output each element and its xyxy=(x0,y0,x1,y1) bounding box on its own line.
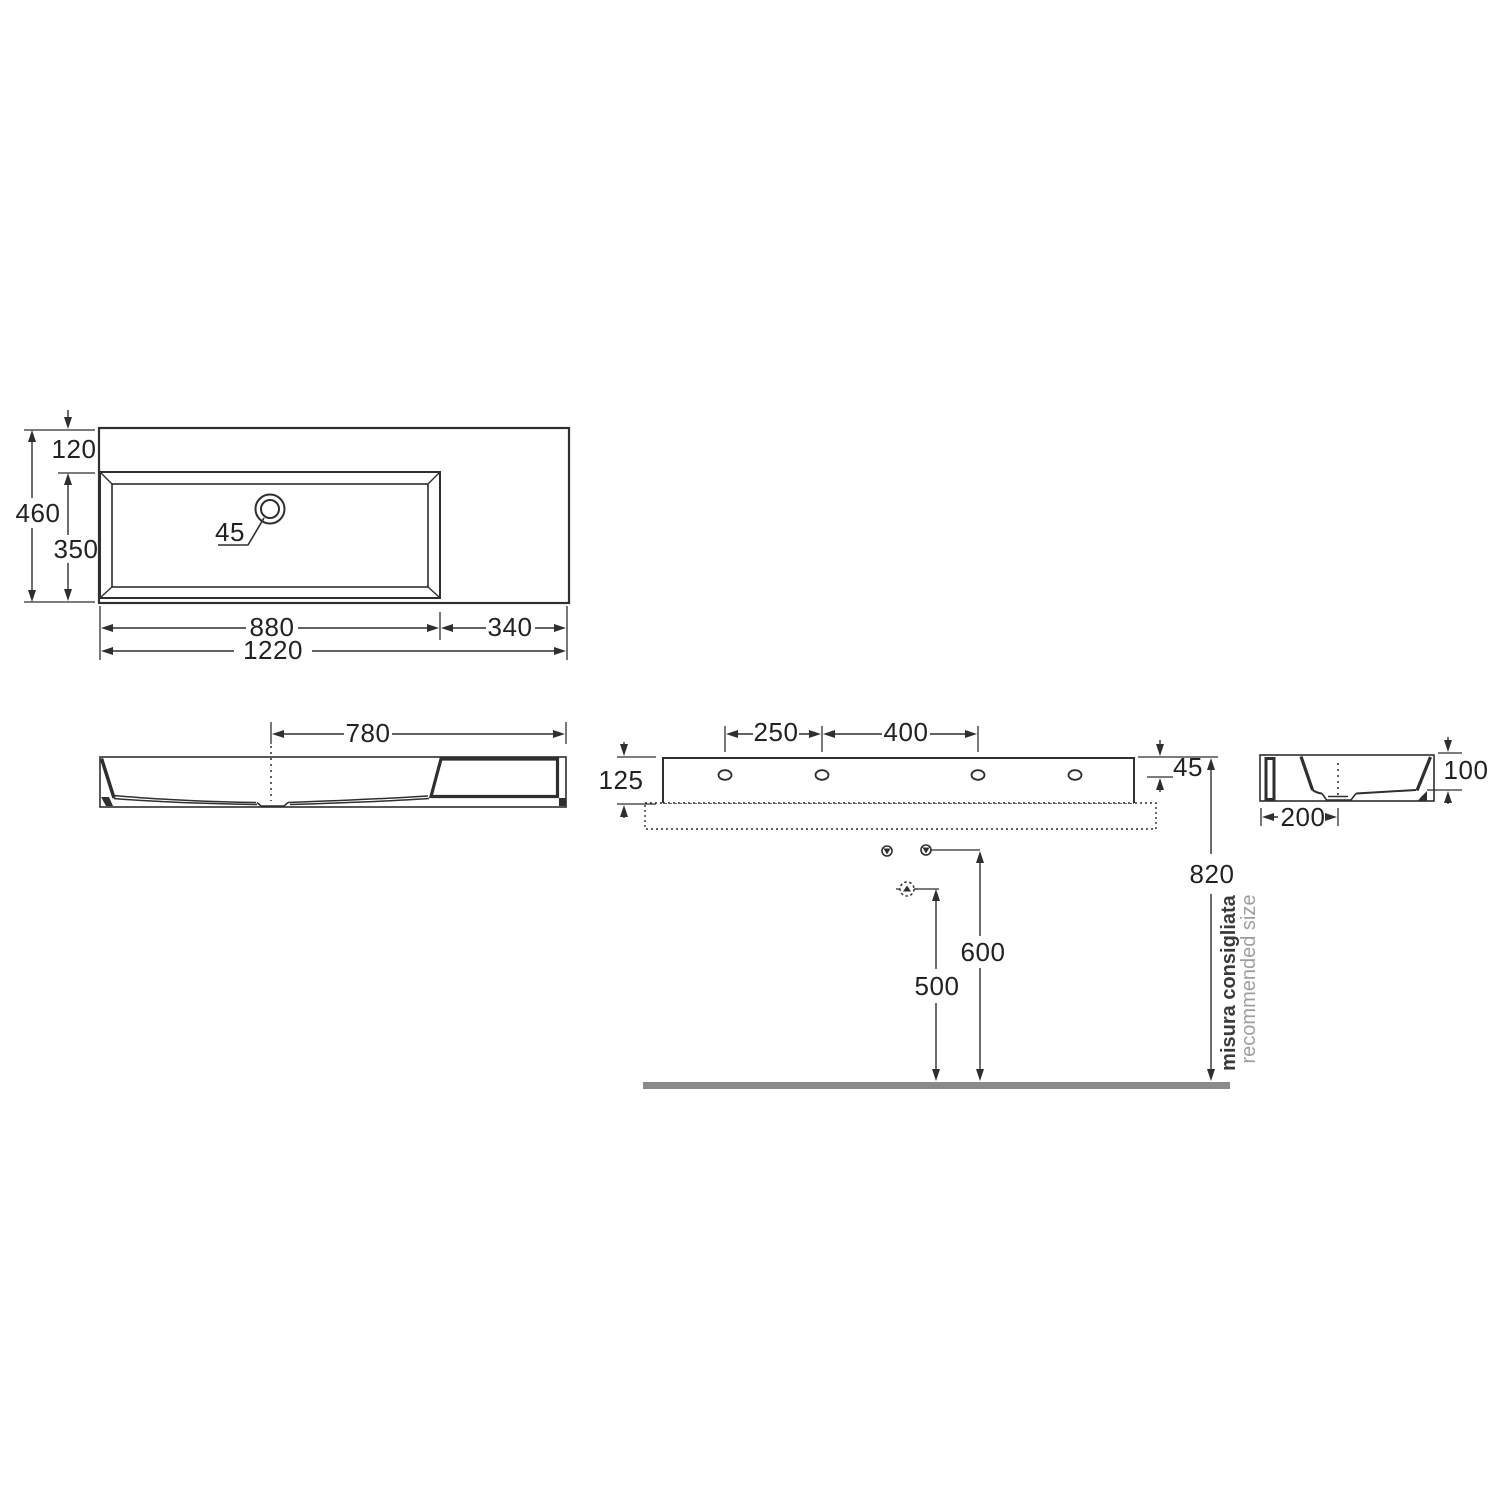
dim-overall-depth: 460 xyxy=(16,500,61,526)
floor-line xyxy=(643,1082,1230,1089)
note-recommended-size-it: misura consigliata xyxy=(1219,895,1239,1071)
dim-hole-pitch-right: 400 xyxy=(884,719,929,745)
front-right-foot xyxy=(559,798,566,806)
dim-hole-drop: 45 xyxy=(1173,754,1203,780)
dim-back-offset: 120 xyxy=(52,436,97,462)
fixing-hole xyxy=(719,770,732,780)
dim-overall-width: 1220 xyxy=(243,637,303,663)
dim-faucet-hole: 45 xyxy=(215,519,245,545)
dim-front-lines xyxy=(271,722,566,744)
dim-drain-depth: 200 xyxy=(1281,804,1326,830)
note-recommended-size-en: recommended size xyxy=(1239,895,1259,1064)
dim-rim-height: 820 xyxy=(1190,861,1235,887)
front-view xyxy=(100,722,566,807)
dim-basin-depth: 350 xyxy=(54,536,99,562)
dim-drain-to-edge: 780 xyxy=(346,720,391,746)
dim-apron-height: 125 xyxy=(599,767,644,793)
recess-dashed-outline xyxy=(645,803,1156,829)
fixing-hole xyxy=(816,770,829,780)
fixing-hole xyxy=(1069,770,1082,780)
dim-install-lines xyxy=(915,757,1218,1081)
installation-view xyxy=(643,757,1230,1089)
front-right-ledge xyxy=(431,759,558,797)
dim-hole-pitch-left: 250 xyxy=(754,719,799,745)
rear-outline xyxy=(663,758,1134,803)
side-profile-outline xyxy=(1260,755,1434,801)
fixing-hole xyxy=(972,770,985,780)
dim-trap-height: 500 xyxy=(915,973,960,999)
dim-bowl-depth: 100 xyxy=(1444,757,1489,783)
dim-supply-height: 600 xyxy=(961,939,1006,965)
drawing-linework xyxy=(0,0,1500,1500)
technical-drawing-sheet: 120 460 350 45 880 340 1220 780 250 400 … xyxy=(0,0,1500,1500)
countertop-outline xyxy=(99,428,569,603)
dim-side-ledge: 340 xyxy=(488,614,533,640)
